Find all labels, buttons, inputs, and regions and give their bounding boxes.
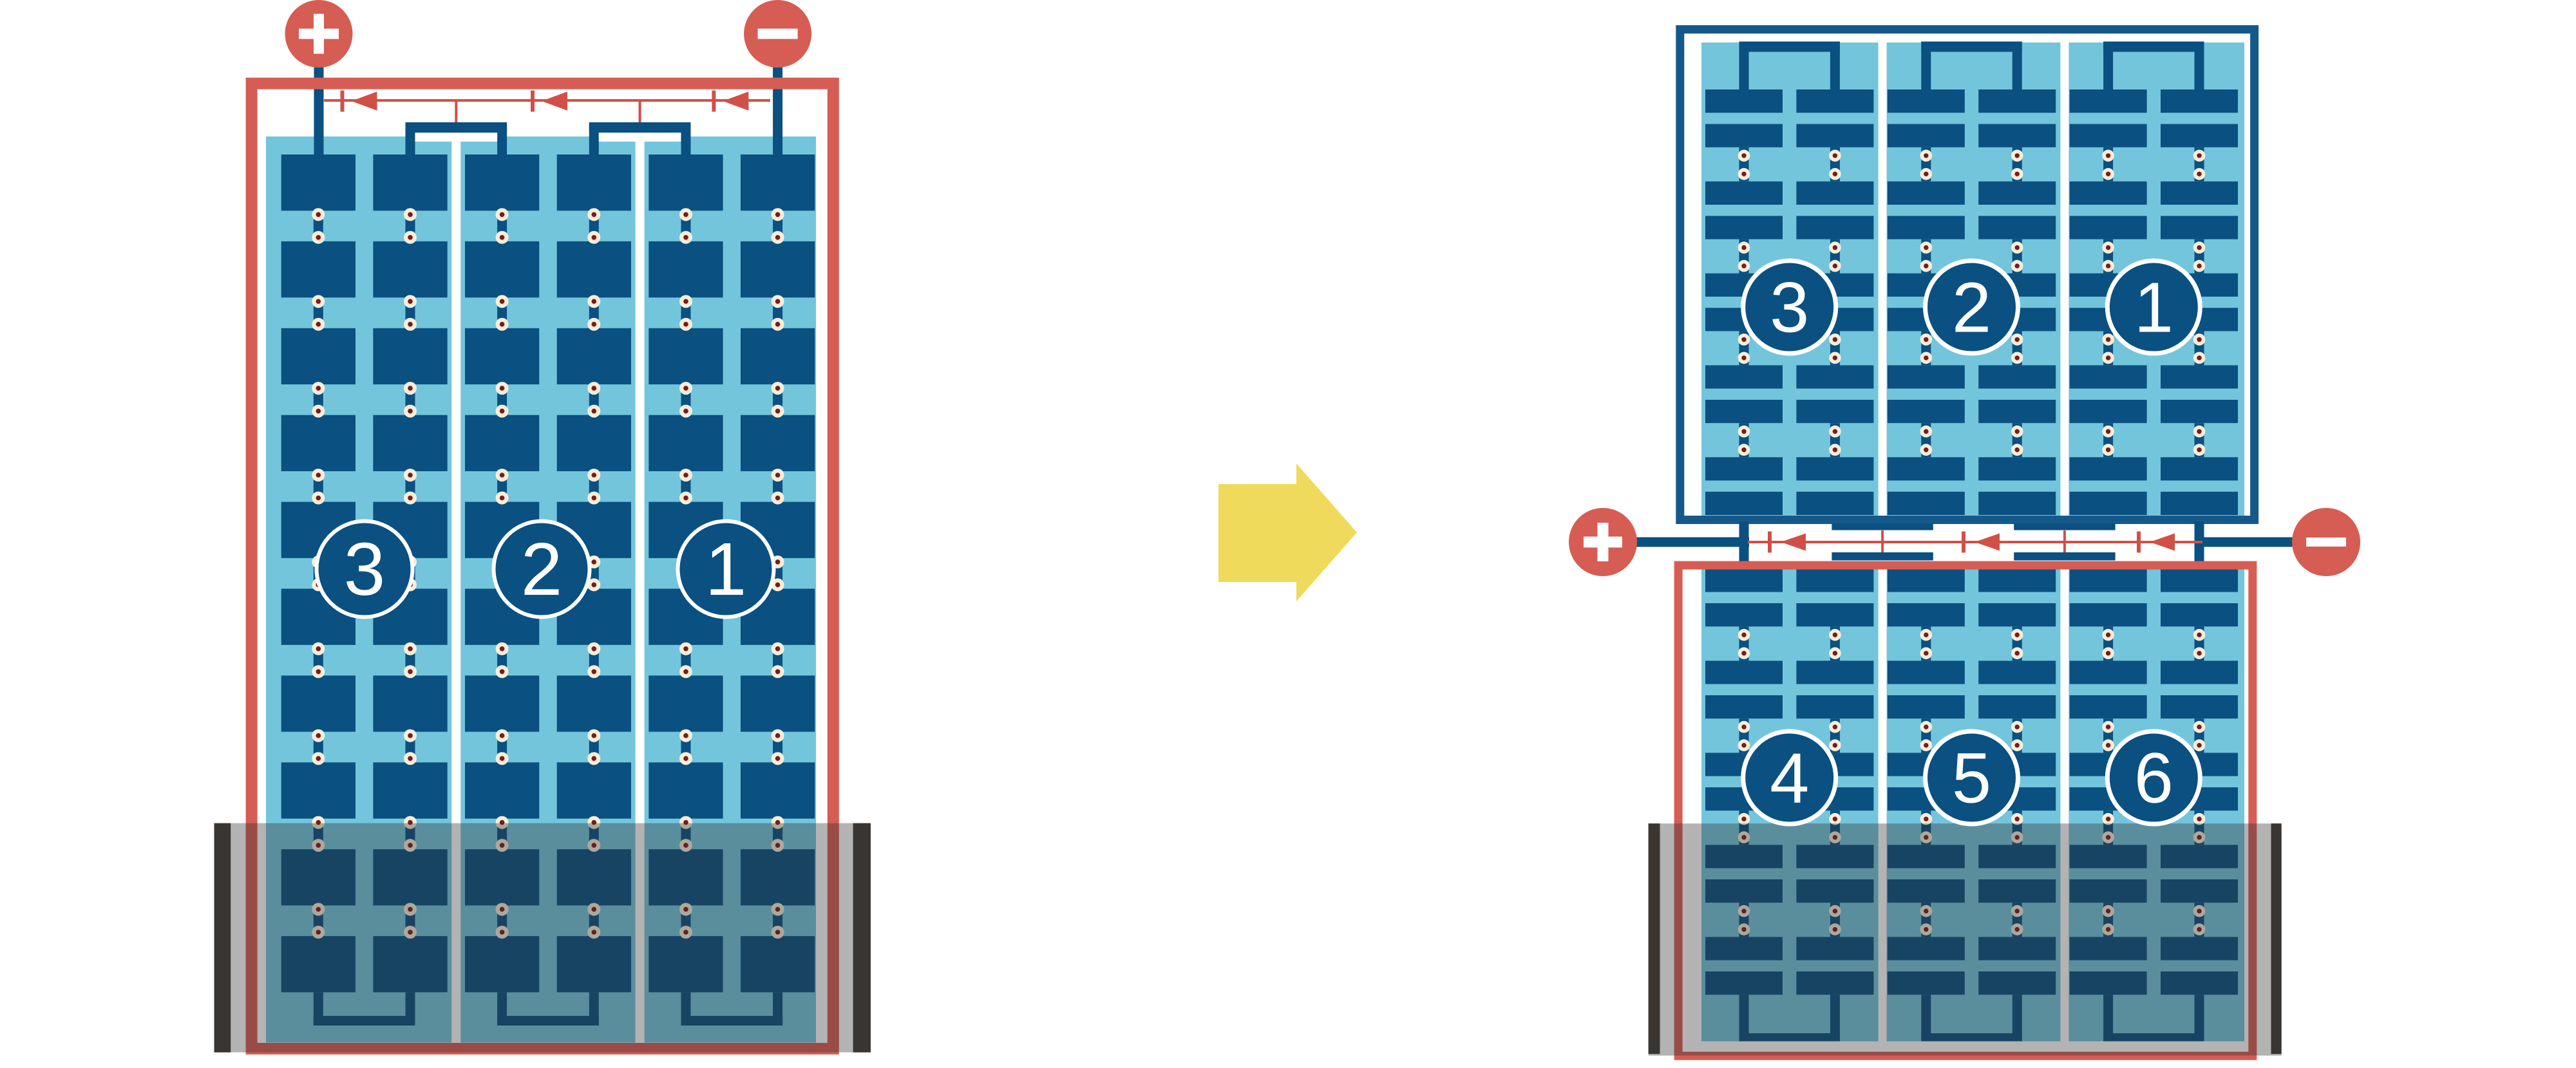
svg-text:1: 1 bbox=[2134, 268, 2173, 348]
svg-text:5: 5 bbox=[1952, 739, 1991, 818]
svg-text:3: 3 bbox=[344, 527, 386, 611]
svg-text:2: 2 bbox=[521, 527, 563, 611]
svg-text:6: 6 bbox=[2134, 739, 2173, 818]
svg-text:4: 4 bbox=[1770, 739, 1809, 818]
svg-text:2: 2 bbox=[1952, 268, 1991, 348]
svg-text:1: 1 bbox=[705, 527, 747, 611]
svg-text:3: 3 bbox=[1770, 268, 1809, 348]
